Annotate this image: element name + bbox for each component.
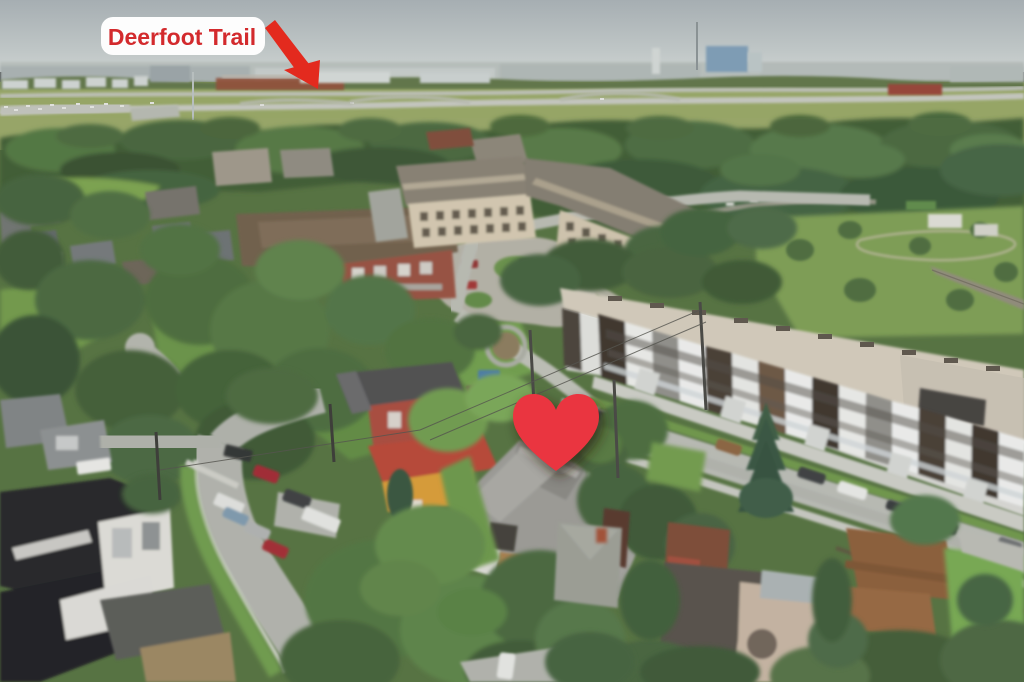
svg-text:Deerfoot Trail: Deerfoot Trail [108, 24, 256, 50]
